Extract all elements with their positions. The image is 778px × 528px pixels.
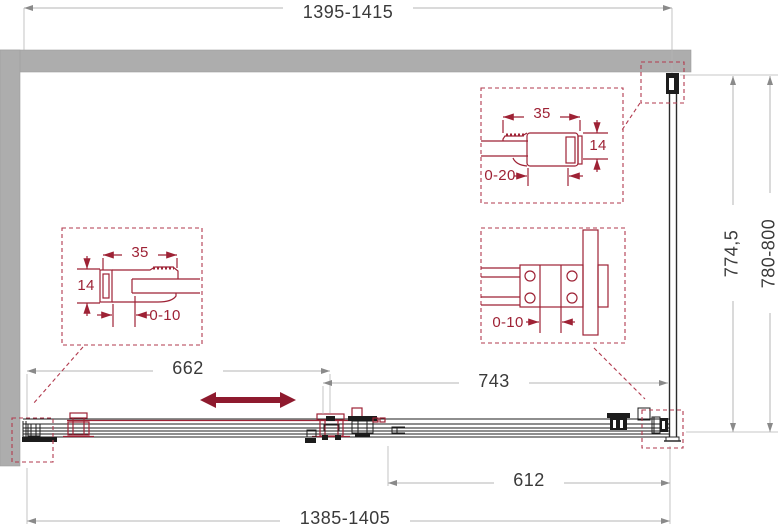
roller-carriage-left (63, 413, 94, 437)
track-rails (23, 419, 670, 437)
detail-right-depth-label: 14 (583, 137, 613, 154)
glass-wall-bracket (666, 73, 679, 94)
dim-bottom-width-label: 1385-1405 (285, 508, 405, 528)
dim-fixed-section-label: 743 (464, 371, 524, 392)
detail-right-adjustment-label: 0-20 (474, 167, 526, 184)
roller-carriage-right (607, 413, 630, 430)
detail-left-depth-label: 14 (71, 277, 101, 294)
wall-top (0, 50, 691, 72)
detail-right-width-label: 35 (527, 105, 557, 122)
dim-top-width-label: 1395-1415 (288, 2, 408, 23)
detail-left-adjustment-label: 0-10 (139, 307, 191, 324)
glass-bottom-bracket (664, 437, 681, 441)
technical-drawing: 1395-1415 1385-1405 612 662 743 774,5 78… (0, 0, 778, 528)
detail-left-width-label: 35 (125, 244, 155, 261)
detail-roller-adjustment-label: 0-10 (482, 314, 534, 331)
slide-direction-arrow-icon (200, 392, 296, 408)
sliding-track-section (22, 408, 670, 443)
wall-left (0, 50, 20, 466)
dim-depth-overall-label: 780-800 (759, 199, 778, 309)
drawing-canvas (0, 0, 778, 528)
side-glass-panel (664, 73, 681, 441)
dim-depth-glass-label: 774,5 (722, 209, 743, 299)
dim-opening-label: 662 (158, 358, 218, 379)
dim-door-travel-label: 612 (499, 470, 559, 491)
door-guide-assembly (348, 408, 385, 437)
